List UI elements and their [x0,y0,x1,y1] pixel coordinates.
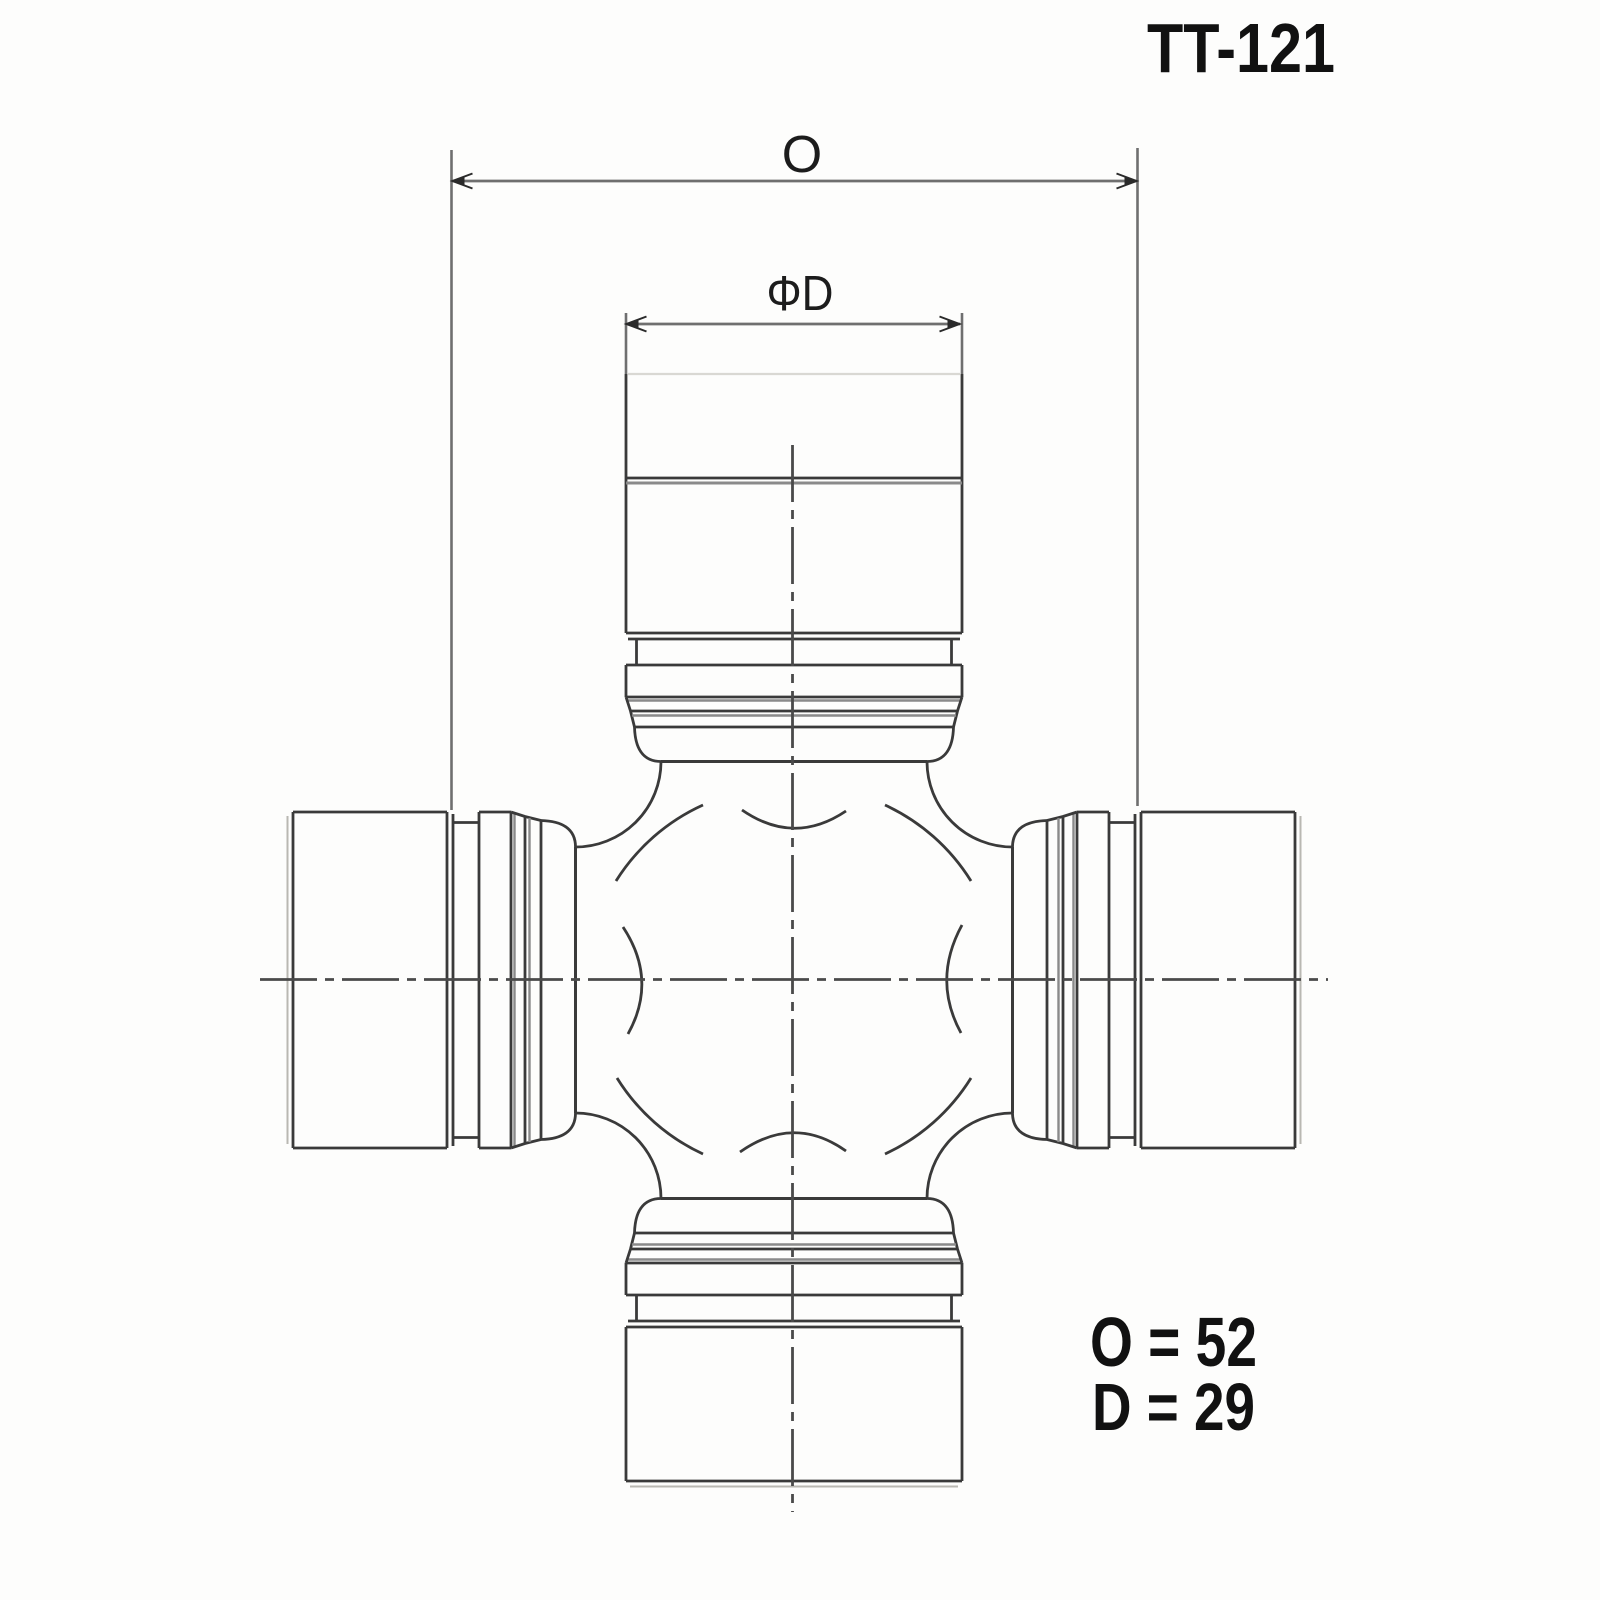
svg-text:O: O [782,126,822,184]
svg-text:TT-121: TT-121 [1147,9,1335,87]
svg-text:ΦD: ΦD [767,267,834,321]
svg-text:D = 29: D = 29 [1092,1370,1255,1445]
